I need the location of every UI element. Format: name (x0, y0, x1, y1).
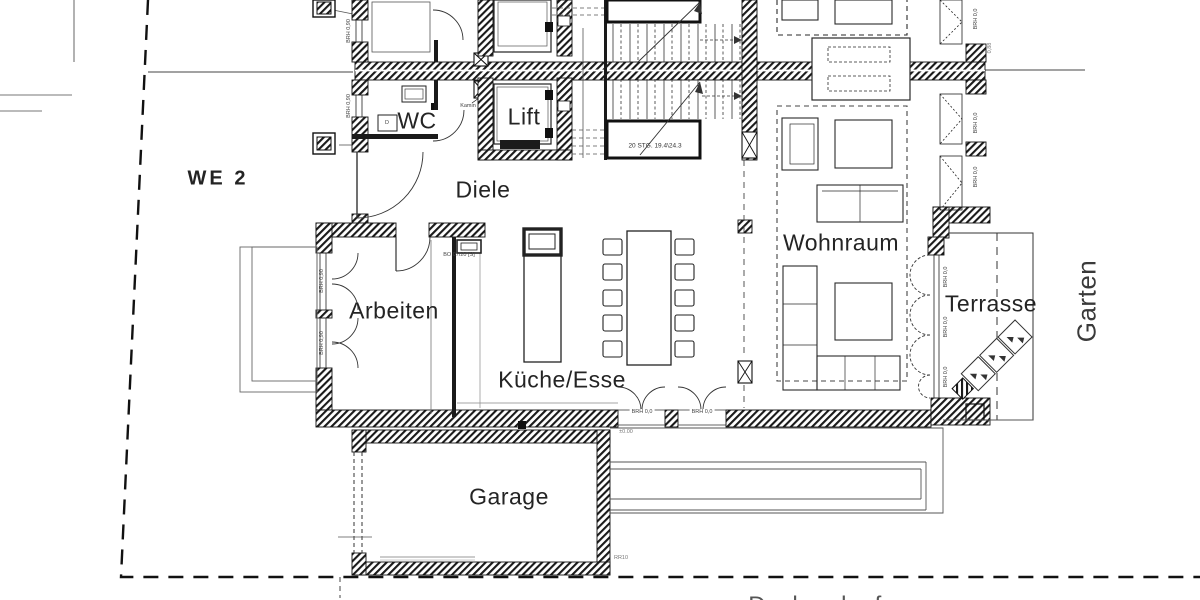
sill-label-east1: BRH 0,0 (973, 9, 979, 30)
room-label-lift: Lift (508, 104, 541, 131)
entrance-columns (313, 0, 335, 154)
terrace (948, 233, 1033, 420)
sill-label-door1: BRH 0,0 (630, 409, 655, 415)
drain-annotation: RR10 (614, 555, 628, 561)
room-label-garage: Garage (469, 484, 549, 511)
door-annotation: BO 07/20 [S] (443, 252, 475, 258)
room-label-arbeiten: Arbeiten (349, 298, 439, 325)
area-label-garten: Garten (1072, 260, 1103, 343)
washer-symbol: D (385, 120, 389, 126)
driveway-ramp (610, 420, 1033, 513)
clipped-bottom-label: Dachverlauf (748, 592, 882, 600)
kitchen-dining (431, 229, 694, 429)
room-label-terrasse: Terrasse (945, 291, 1037, 318)
kamin-annotation: Kamin (460, 103, 476, 109)
sill-label-door2: BRH 0,0 (690, 409, 715, 415)
sill-label-fold2: BRH 0,0 (943, 317, 949, 338)
room-label-kueche: Küche/Esse (498, 367, 626, 394)
sill-label-east2: BRH 0,0 (973, 113, 979, 134)
floor-plan-page: WE 2 WC Lift Diele Arbeiten Küche/Esse W… (0, 0, 1200, 600)
room-label-diele: Diele (456, 177, 511, 204)
sill-label-west2: BRH 0,90 (346, 94, 352, 118)
west-patio (240, 247, 317, 392)
sill-label-fold1: BRH 0,0 (943, 267, 949, 288)
sill-label-arbeiten1: BRH 0,90 (319, 269, 325, 293)
stair-annotation: 20 STG. 19.4\24.3 (628, 143, 681, 150)
room-label-wc: WC (397, 108, 436, 135)
room-label-wohnraum: Wohnraum (783, 230, 899, 257)
sill-label-fold3: BRH 0,0 (943, 367, 949, 388)
sill-label-arbeiten2: BRH 0,90 (319, 331, 325, 355)
wohnraum-furniture (738, 0, 910, 408)
unit-label: WE 2 (188, 168, 249, 191)
dim-label-east: 0,88 (987, 43, 993, 54)
sill-label-west1: BRH 0,90 (346, 19, 352, 43)
level-annotation: ±0.00 (619, 429, 633, 435)
sill-label-east3: BRH 0,0 (973, 167, 979, 188)
